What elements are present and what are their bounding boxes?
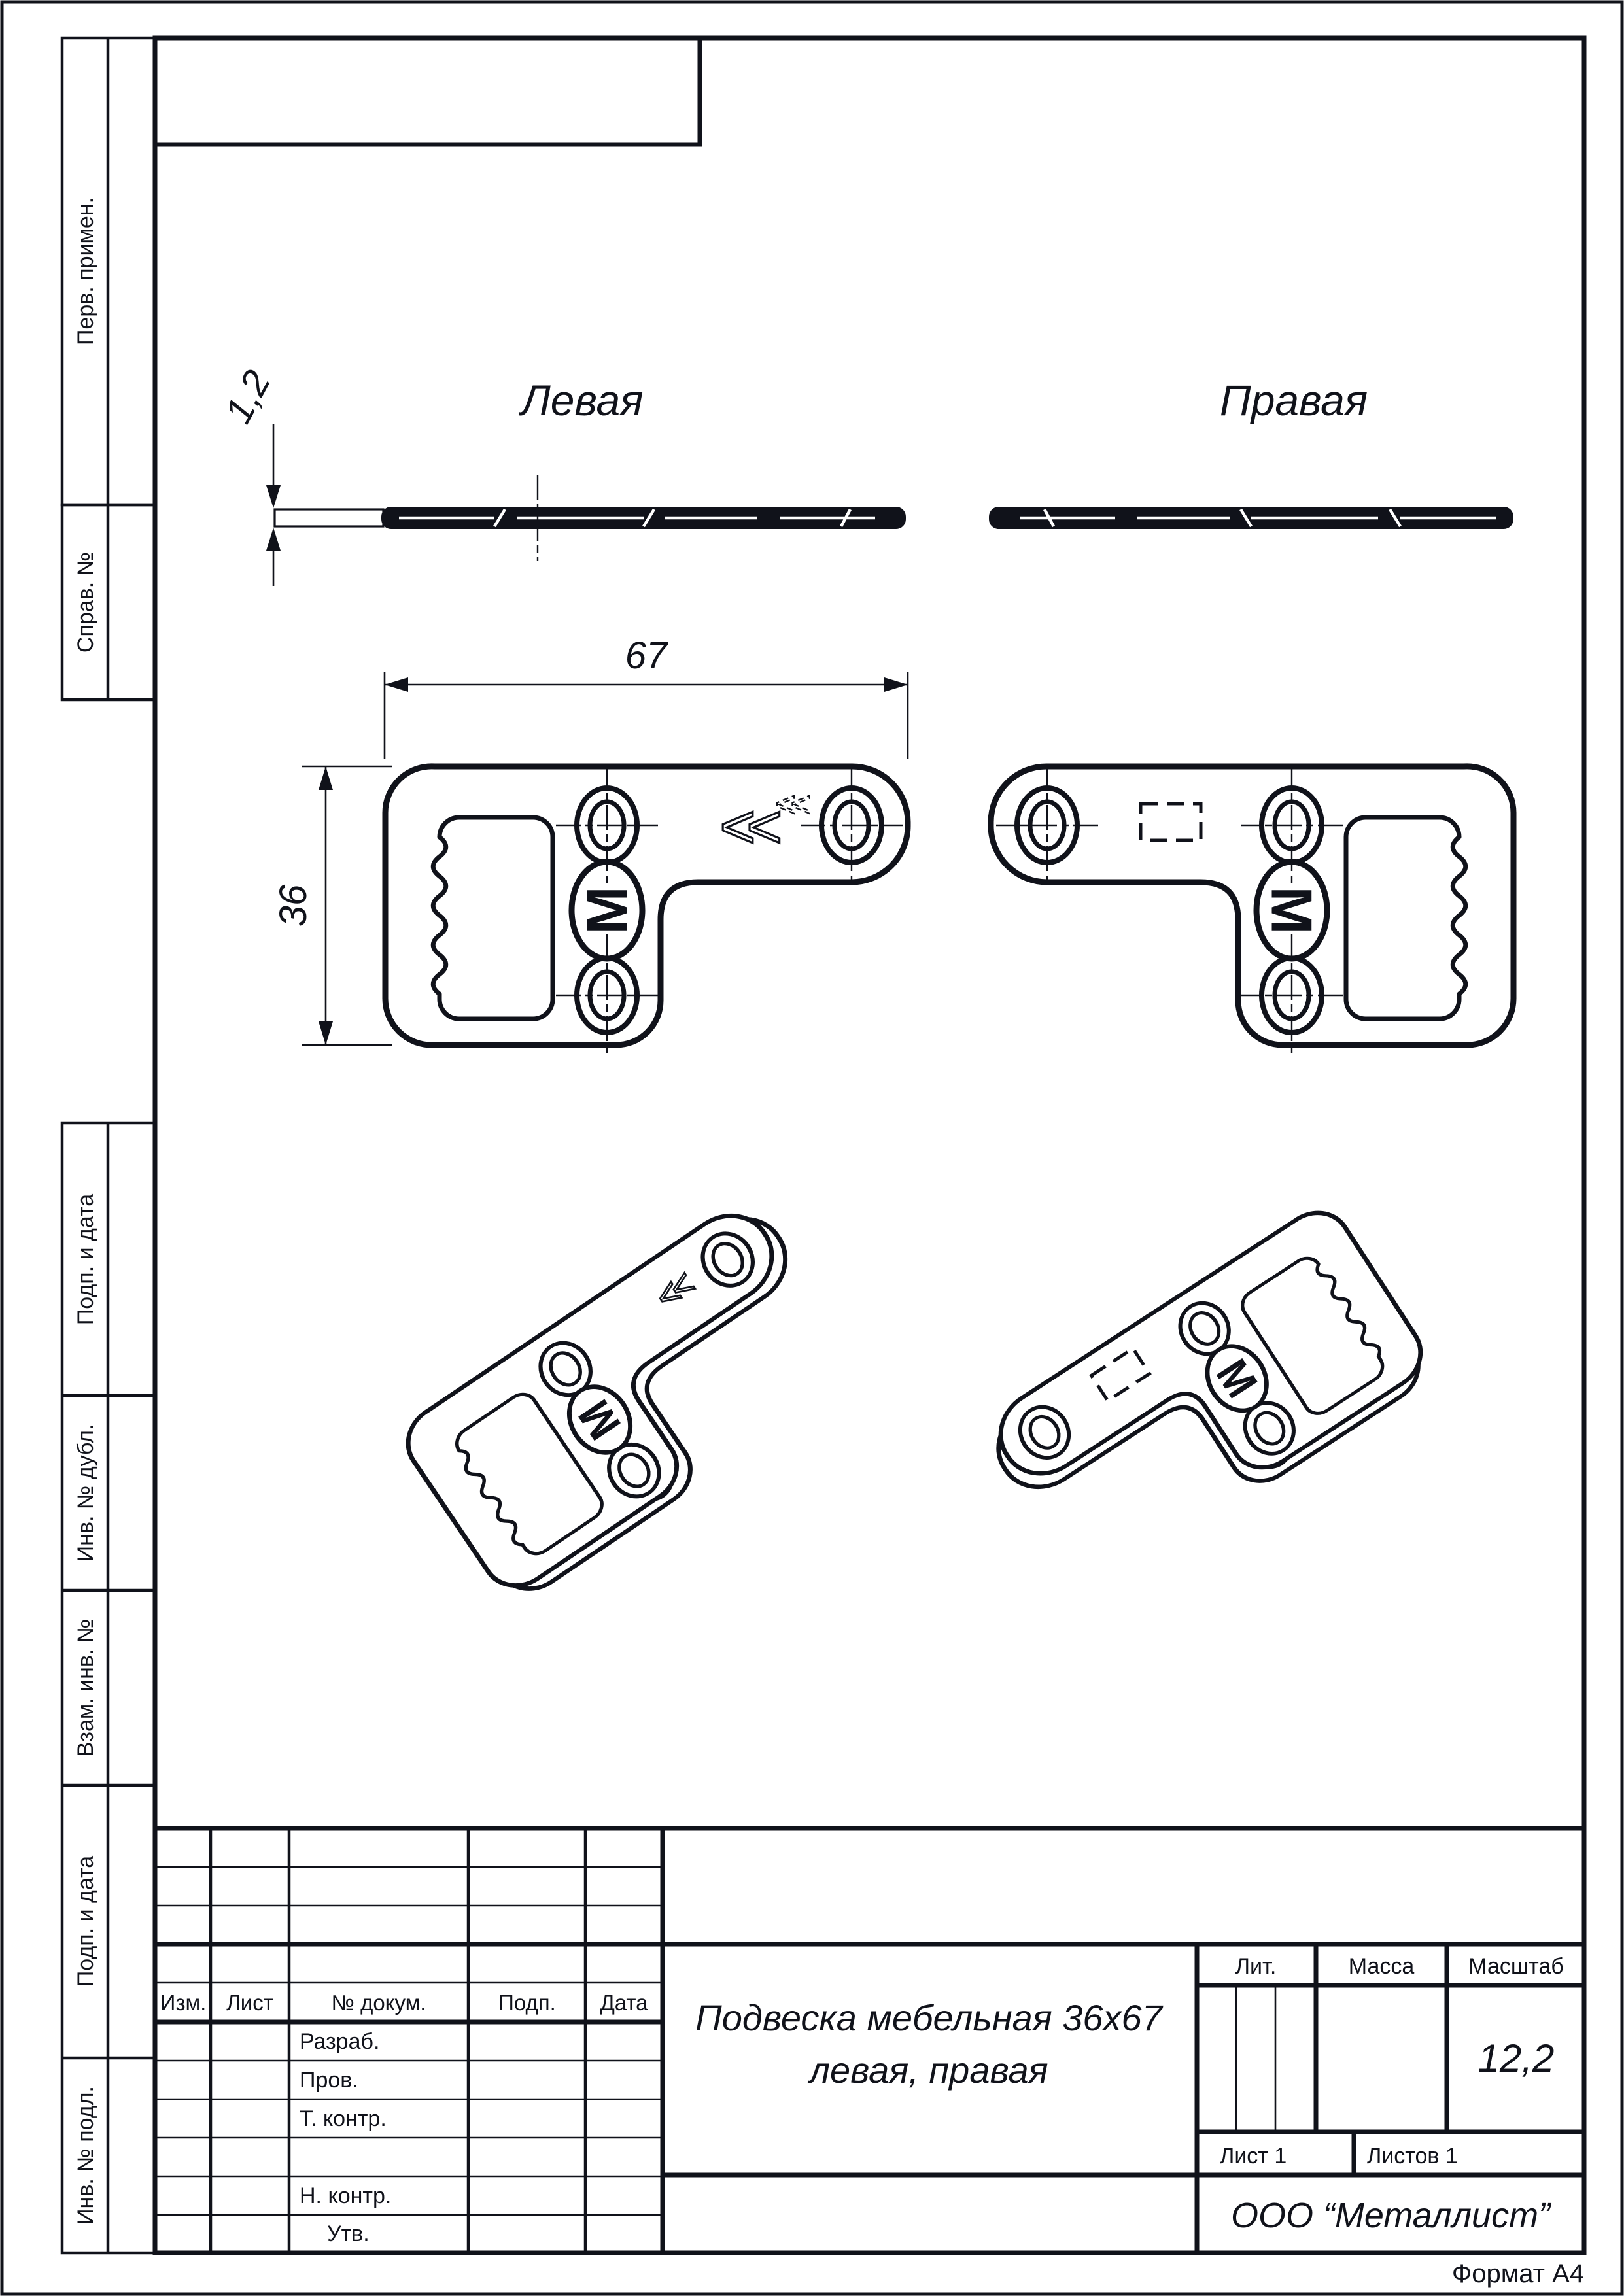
sheet-value: Лист 1 (1220, 2144, 1287, 2168)
margin-label-inv-no-dubl: Инв. № дубл. (73, 1424, 98, 1562)
iso-view-right-bracket (978, 1199, 1439, 1598)
margin-label-inv-no-podl: Инв. № подл. (73, 2086, 98, 2225)
row-nkontr: Н. контр. (300, 2184, 391, 2208)
edge-view-left (275, 475, 906, 561)
sheets-value: Листов 1 (1367, 2144, 1458, 2168)
company-name: ООО “Металлист” (1231, 2196, 1551, 2235)
view-title-left: Левая (519, 376, 644, 424)
row-tkontr: Т. контр. (300, 2106, 387, 2131)
margin-column-blocks: Перв. примен. Справ. № Подп. и дата Инв.… (62, 38, 155, 2253)
iso-view-left-bracket (395, 1194, 867, 1608)
col-list: Лист (226, 1991, 273, 2015)
col-dokum: № докум. (332, 1991, 426, 2015)
part-name-line1: Подвеска мебельная 36х67 (695, 1997, 1164, 2038)
dimension-width-text: 67 (625, 634, 669, 677)
part-name-line2: левая, правая (807, 2049, 1048, 2091)
gost-drawing: M Перв. примен. Справ. № Подп. и дата Ин… (0, 0, 1624, 2296)
col-podp: Подп. (498, 1991, 556, 2015)
col-data: Дата (600, 1991, 648, 2015)
row-razrab: Разраб. (300, 2029, 379, 2054)
flat-view-right-bracket (991, 764, 1513, 1057)
masshtab-value: 12,2 (1478, 2036, 1555, 2080)
edge-view-right (989, 507, 1513, 529)
dimension-height: 36 (272, 766, 392, 1045)
margin-label-vzam-inv-no: Взам. инв. № (73, 1619, 98, 1757)
view-title-right: Правая (1220, 376, 1368, 424)
dimension-thickness: 1,2 (216, 364, 281, 586)
chevron-stamp: << (719, 792, 780, 861)
col-izm: Изм. (160, 1991, 207, 2015)
dimension-height-text: 36 (272, 884, 315, 927)
dimension-thickness-text: 1,2 (216, 364, 279, 430)
margin-label-podp-i-data-1: Подп. и дата (73, 1194, 98, 1325)
row-utv: Утв. (327, 2221, 370, 2246)
page-border (2, 2, 1622, 2294)
strip-tab (275, 509, 383, 526)
margin-label-podp-i-data-2: Подп. и дата (73, 1856, 98, 1987)
massa-label: Масса (1349, 1954, 1415, 1979)
flat-view-left-bracket: << << (385, 764, 908, 1057)
top-left-spare-box (155, 38, 700, 145)
drawing-sheet: M Перв. примен. Справ. № Подп. и дата Ин… (0, 0, 1624, 2296)
title-block: Изм. Лист № докум. Подп. Дата Разраб. Пр… (155, 1828, 1584, 2253)
masshtab-label: Масштаб (1468, 1954, 1563, 1979)
margin-label-sprav-no: Справ. № (73, 552, 98, 653)
margin-label-perv-primen: Перв. примен. (73, 197, 98, 345)
chevron-stamp-echo: << (774, 785, 810, 824)
row-prov: Пров. (300, 2068, 358, 2093)
drawing-frame (155, 38, 1584, 2253)
lit-label: Лит. (1235, 1954, 1277, 1979)
format-note: Формат А4 (1452, 2259, 1584, 2288)
dimension-width: 67 (385, 634, 908, 759)
